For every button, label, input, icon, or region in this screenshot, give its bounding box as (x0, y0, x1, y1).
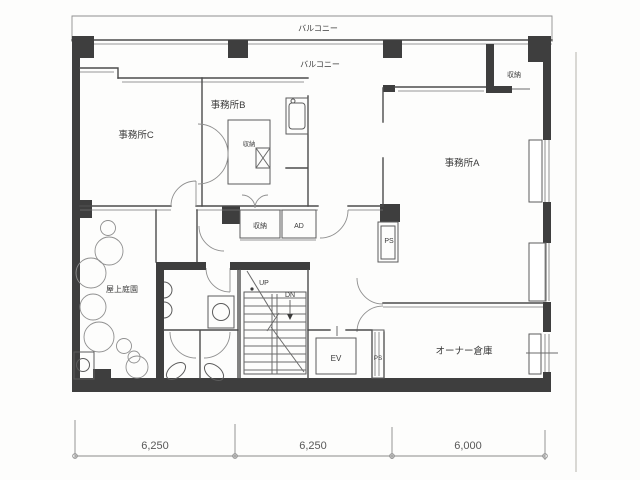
ad-shaft-label: AD (294, 223, 304, 230)
balcony-label-inner: バルコニー (300, 60, 340, 69)
restroom (156, 262, 238, 384)
office-b-label: 事務所B (211, 99, 246, 111)
corridor-closet-ad (240, 195, 316, 238)
corridor-closet-label: 収納 (253, 221, 267, 230)
balcony-label-outer: バルコニー (298, 24, 338, 33)
dimension-left: 6,250 (141, 440, 169, 452)
elevator-block (308, 326, 384, 378)
owner-warehouse-label: オーナー倉庫 (435, 345, 493, 357)
right-wall-windows (526, 140, 558, 374)
outer-walls (72, 36, 551, 392)
dimension-right: 6,000 (454, 440, 482, 452)
office-b-closet-label: 収納 (243, 139, 256, 148)
ps-lower-label: PS (374, 355, 382, 362)
storage-room-top-right (486, 44, 530, 93)
washbasin-icon (208, 296, 234, 328)
roof-garden-label: 屋上庭園 (106, 284, 138, 294)
roof-garden-trees (74, 221, 148, 380)
kitchen-sink-icon (286, 98, 308, 134)
floor-plan-page: バルコニー バルコニー 収納 事務所B 事務所C 収納 事務所A 収納 AD P… (0, 0, 640, 480)
ps-mid-label: PS (384, 238, 394, 245)
floor-plan-canvas: バルコニー バルコニー 収納 事務所B 事務所C 収納 事務所A 収納 AD P… (0, 0, 640, 480)
interior-walls (80, 68, 543, 378)
storage-top-right-label: 収納 (507, 70, 521, 79)
office-a-label: 事務所A (445, 157, 481, 169)
office-c-label: 事務所C (118, 129, 154, 141)
stairs-up-label: UP (259, 280, 269, 287)
elevator-label: EV (331, 354, 342, 363)
dimension-middle: 6,250 (299, 440, 327, 452)
stairwell (238, 262, 310, 378)
stairs-down-label: DN (285, 292, 295, 299)
office-b-closet (198, 120, 270, 184)
